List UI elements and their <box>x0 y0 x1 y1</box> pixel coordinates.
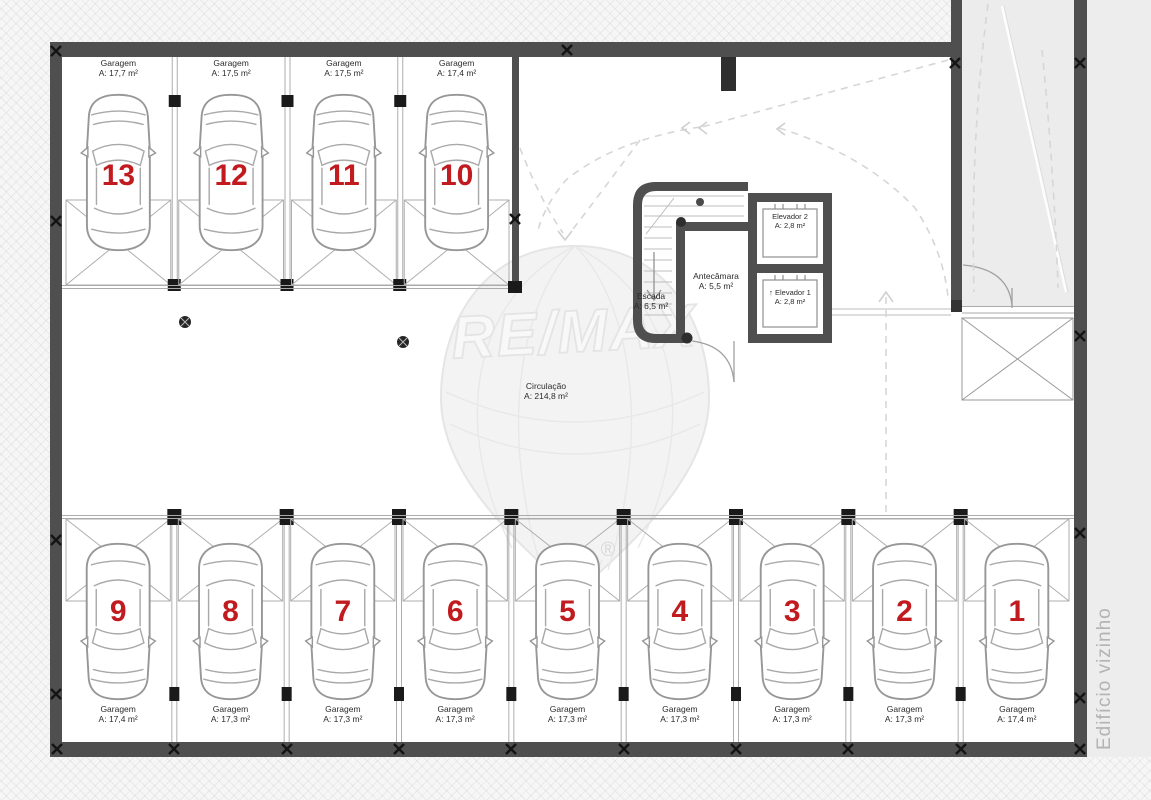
watermark-registered-icon: ® <box>601 539 616 561</box>
wall-stub <box>721 57 736 91</box>
floor-plan-page: RE/MAX ® <box>0 0 1151 800</box>
floor-plan-drawing: RE/MAX ® <box>0 0 1151 800</box>
neighbor-building-strip <box>1087 0 1151 757</box>
